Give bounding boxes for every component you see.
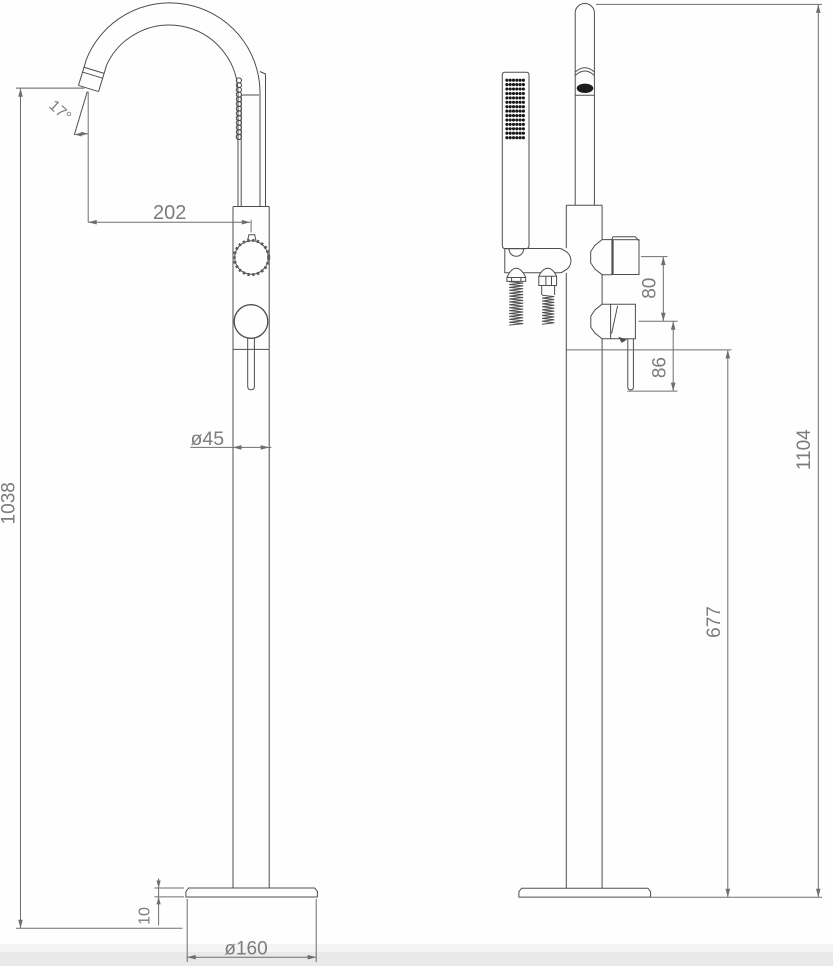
svg-text:677: 677 bbox=[704, 606, 725, 638]
svg-text:ø160: ø160 bbox=[224, 939, 267, 960]
svg-text:80: 80 bbox=[640, 278, 661, 299]
svg-text:10: 10 bbox=[137, 907, 154, 925]
svg-text:1104: 1104 bbox=[794, 429, 815, 470]
svg-text:202: 202 bbox=[153, 202, 186, 224]
svg-text:1038: 1038 bbox=[0, 482, 20, 524]
svg-text:ø45: ø45 bbox=[191, 428, 225, 450]
svg-text:86: 86 bbox=[650, 357, 671, 378]
